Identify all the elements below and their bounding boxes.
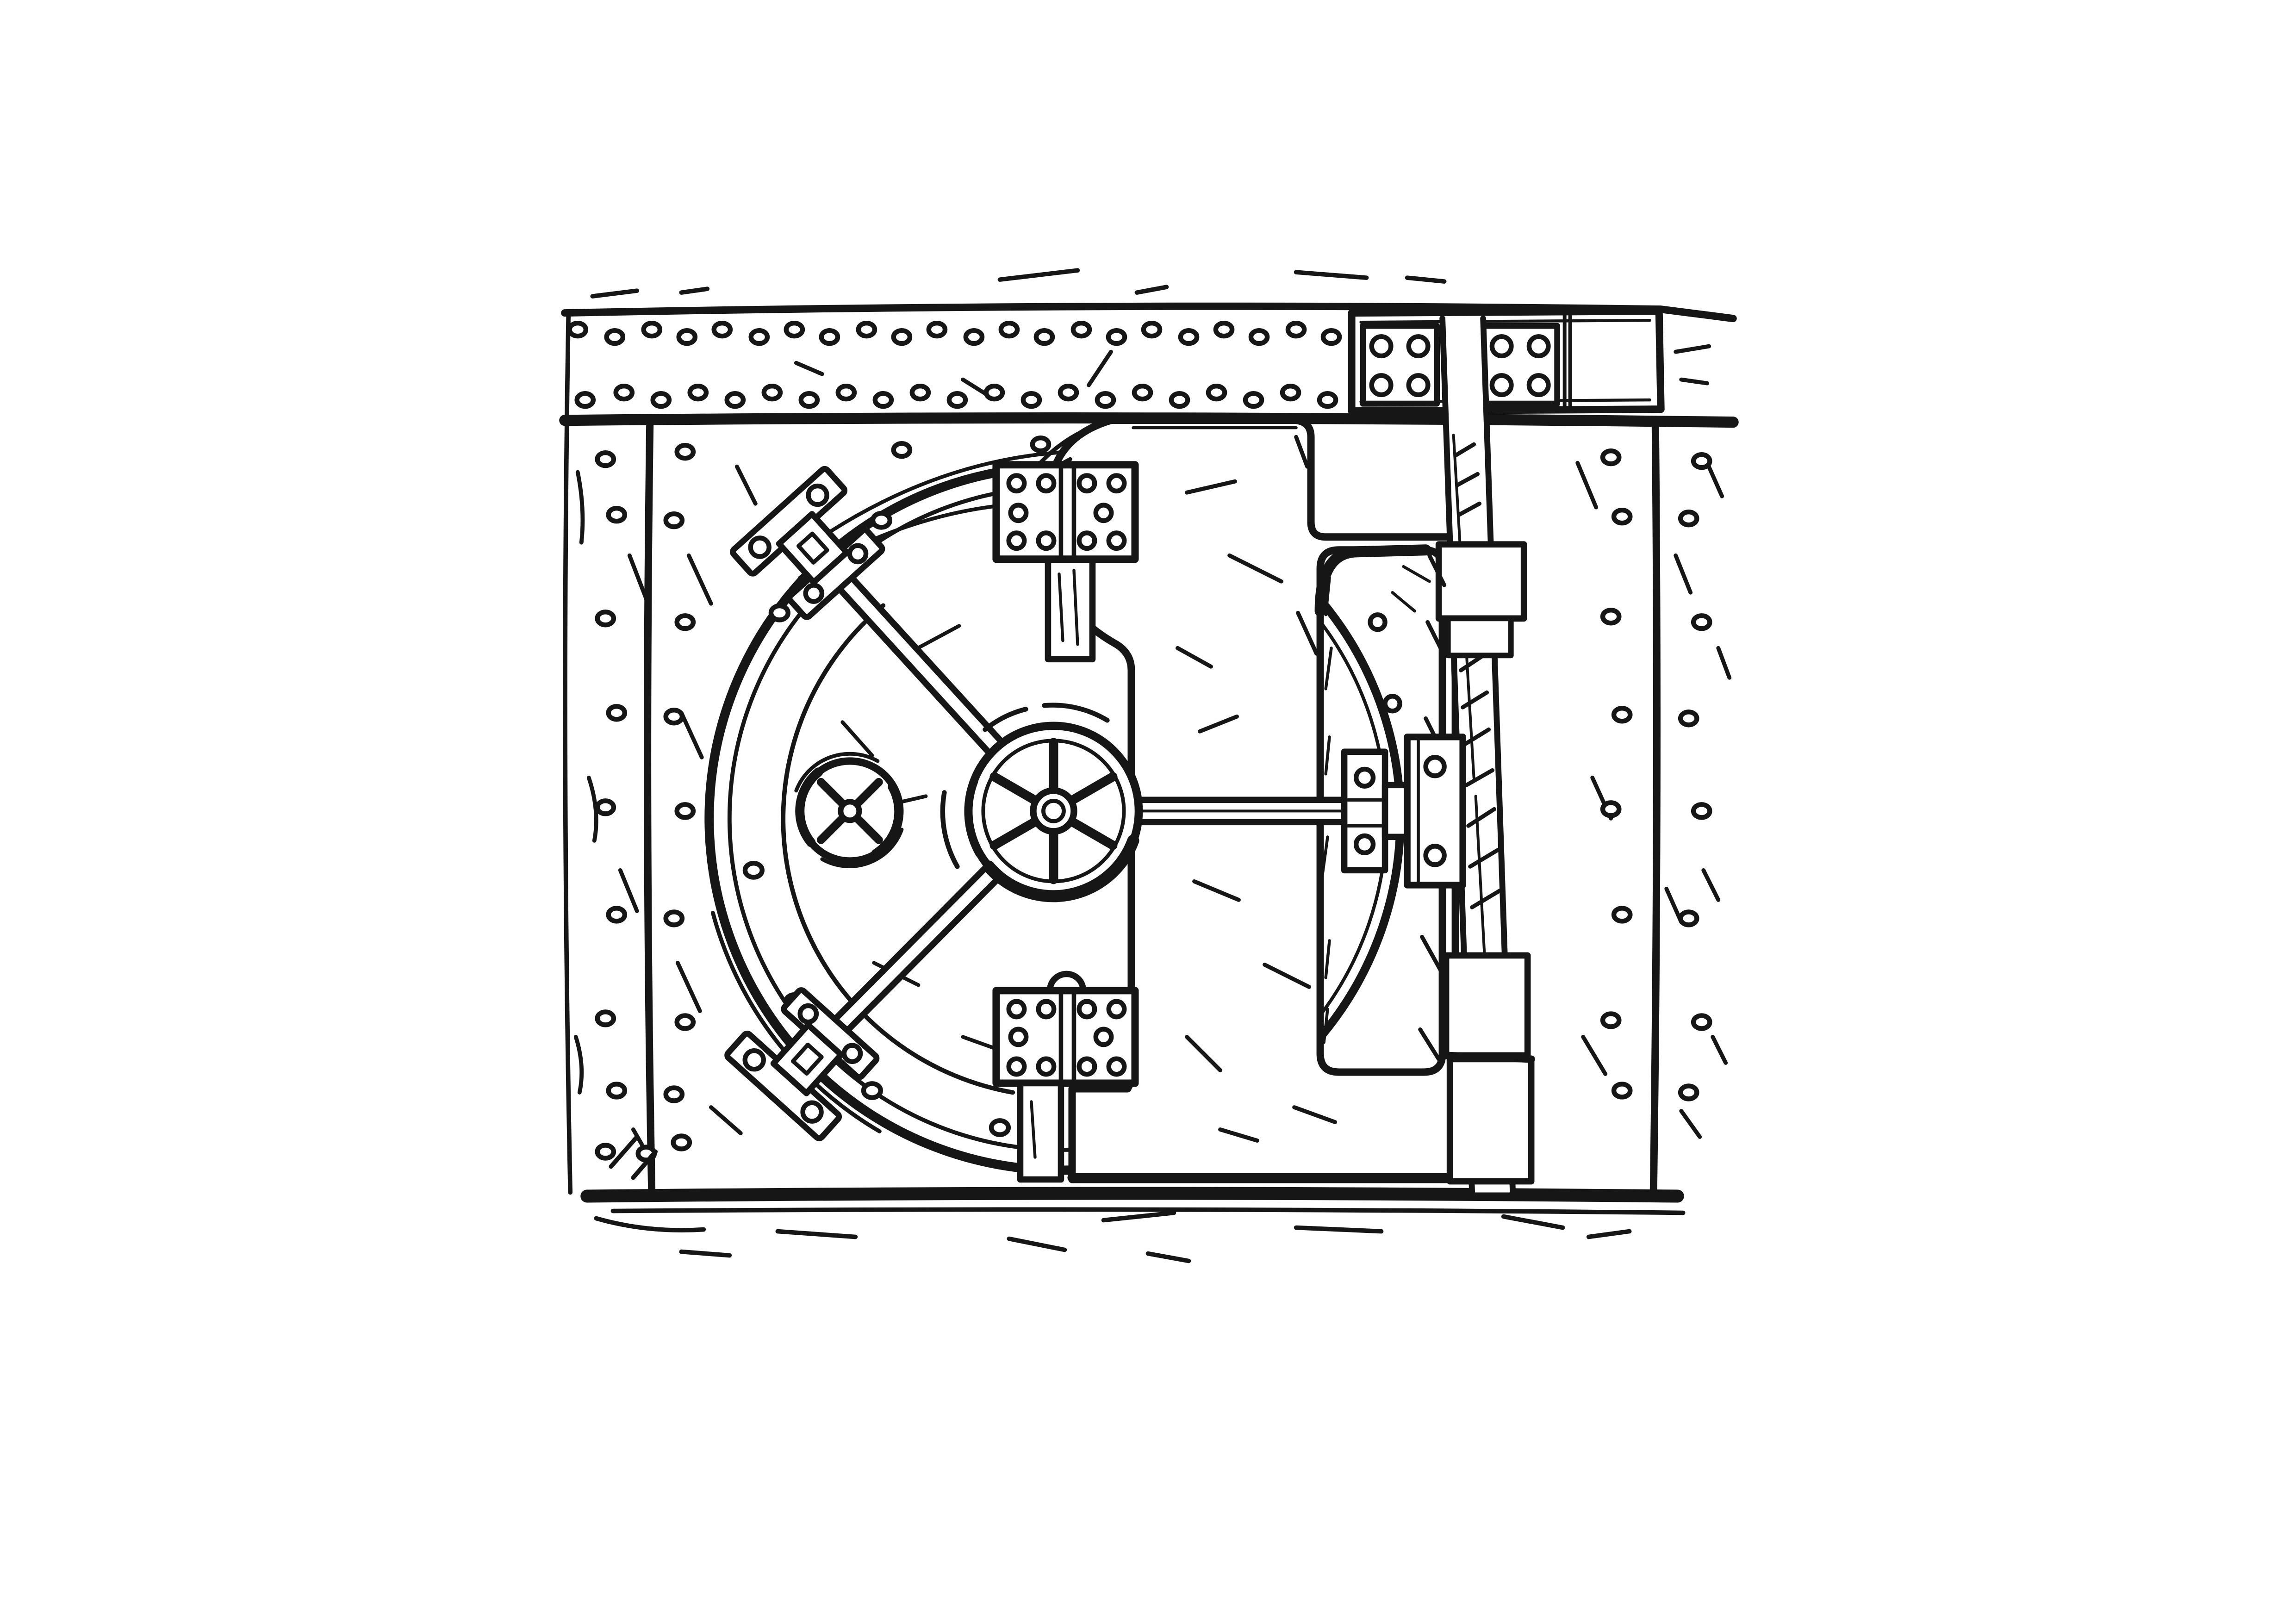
rivet bbox=[821, 330, 838, 343]
rivet bbox=[1181, 330, 1197, 343]
rivet bbox=[1693, 804, 1710, 817]
rivet bbox=[607, 330, 623, 343]
rivet bbox=[771, 606, 788, 620]
rivet bbox=[1171, 393, 1188, 406]
jamb-bolt bbox=[1370, 615, 1385, 629]
frame-left-edge bbox=[647, 422, 652, 1192]
rivet bbox=[1245, 393, 1262, 406]
rivet bbox=[1693, 454, 1710, 467]
latch-bolt bbox=[1356, 836, 1373, 853]
rivet bbox=[666, 1088, 682, 1101]
rivet bbox=[751, 330, 767, 343]
rivet bbox=[714, 323, 730, 336]
rivet bbox=[644, 323, 660, 336]
rivet bbox=[986, 386, 1002, 399]
rivet bbox=[609, 908, 625, 921]
latch-bolt bbox=[1356, 769, 1373, 786]
rivet bbox=[912, 386, 928, 399]
rivet bbox=[597, 453, 614, 466]
rivet bbox=[666, 912, 682, 925]
rivet bbox=[875, 393, 891, 406]
wheel-hub bbox=[1033, 790, 1074, 831]
rivet bbox=[929, 323, 945, 336]
rivet bbox=[666, 710, 682, 723]
rivet bbox=[597, 1012, 614, 1025]
rivet bbox=[1097, 393, 1114, 406]
rivet bbox=[1216, 323, 1232, 336]
rivet bbox=[597, 1145, 614, 1158]
rivet bbox=[1144, 323, 1160, 336]
rivet bbox=[653, 393, 669, 406]
rivet bbox=[570, 323, 586, 336]
rivet bbox=[894, 443, 910, 456]
rivet bbox=[1680, 912, 1697, 925]
rivet bbox=[786, 323, 803, 336]
rivet bbox=[677, 445, 693, 458]
column-bracket-top-step bbox=[1448, 618, 1511, 655]
vault-door-illustration: Hand-drawn black ink cartoon of a closed… bbox=[0, 0, 2296, 1624]
rivet bbox=[1208, 386, 1225, 399]
rivet bbox=[1693, 616, 1710, 628]
jamb-bolt bbox=[1385, 696, 1400, 711]
rivet bbox=[677, 1015, 693, 1028]
rivet bbox=[894, 330, 910, 343]
rivet bbox=[1001, 323, 1017, 336]
rivet bbox=[1251, 330, 1267, 343]
rivet bbox=[801, 393, 817, 406]
ground-line bbox=[613, 1209, 1683, 1213]
rivet bbox=[597, 612, 614, 625]
rivet bbox=[616, 386, 632, 399]
rivet bbox=[949, 393, 965, 406]
rivet bbox=[679, 330, 695, 343]
rivet bbox=[745, 863, 762, 877]
latch-bolt bbox=[1426, 757, 1444, 776]
rivet bbox=[764, 386, 780, 399]
rivet bbox=[1603, 610, 1619, 623]
rivet bbox=[873, 513, 890, 527]
rivet bbox=[859, 323, 875, 336]
hinge-top-arm bbox=[1048, 559, 1092, 659]
rivet bbox=[1073, 323, 1089, 336]
rivet bbox=[666, 514, 682, 527]
hinge-bottom-arm bbox=[1020, 1083, 1061, 1179]
rivet bbox=[1603, 803, 1619, 815]
vault-door-canvas: Hand-drawn black ink cartoon of a closed… bbox=[0, 0, 2296, 1624]
rivet bbox=[1680, 1086, 1697, 1099]
rivet bbox=[1603, 1014, 1619, 1027]
rivet bbox=[609, 1084, 625, 1097]
rivet bbox=[864, 1083, 881, 1097]
rivet bbox=[966, 330, 982, 343]
rivet bbox=[727, 393, 743, 406]
rivet bbox=[1033, 438, 1049, 451]
rivet bbox=[1614, 708, 1630, 721]
rivet bbox=[1680, 512, 1697, 525]
rivet bbox=[1036, 330, 1052, 343]
rivet bbox=[609, 706, 625, 719]
rivet bbox=[1614, 1084, 1630, 1097]
rivet bbox=[1693, 1015, 1710, 1028]
dial-hub bbox=[840, 802, 859, 820]
rivet bbox=[1614, 510, 1630, 523]
rivet bbox=[1319, 393, 1336, 406]
rivet bbox=[1282, 386, 1299, 399]
rivet bbox=[1323, 330, 1339, 343]
rivet bbox=[609, 508, 625, 521]
rivet bbox=[1060, 386, 1076, 399]
rivet bbox=[1603, 451, 1619, 464]
wall-left-edge bbox=[565, 315, 570, 1192]
column-bracket-bottom-a bbox=[1446, 955, 1528, 1055]
rivet bbox=[597, 801, 614, 814]
rivet bbox=[690, 386, 706, 399]
top-bolt-plates bbox=[1352, 311, 1661, 411]
rivet bbox=[1134, 386, 1151, 399]
rivet bbox=[991, 1120, 1008, 1134]
latch-bolt bbox=[1426, 846, 1444, 865]
rivet bbox=[1680, 712, 1697, 725]
rivet bbox=[673, 1136, 690, 1149]
rivet bbox=[677, 804, 693, 817]
rivet bbox=[1614, 908, 1630, 921]
column-bracket-top bbox=[1439, 544, 1524, 618]
rivet bbox=[577, 393, 593, 406]
rivet bbox=[1108, 330, 1125, 343]
column-bracket-bottom-b bbox=[1450, 1059, 1531, 1181]
frame-right-edge bbox=[1654, 422, 1657, 1192]
rivet bbox=[838, 386, 854, 399]
rivet bbox=[1288, 323, 1304, 336]
rivet bbox=[677, 616, 693, 628]
rivet bbox=[1023, 393, 1039, 406]
